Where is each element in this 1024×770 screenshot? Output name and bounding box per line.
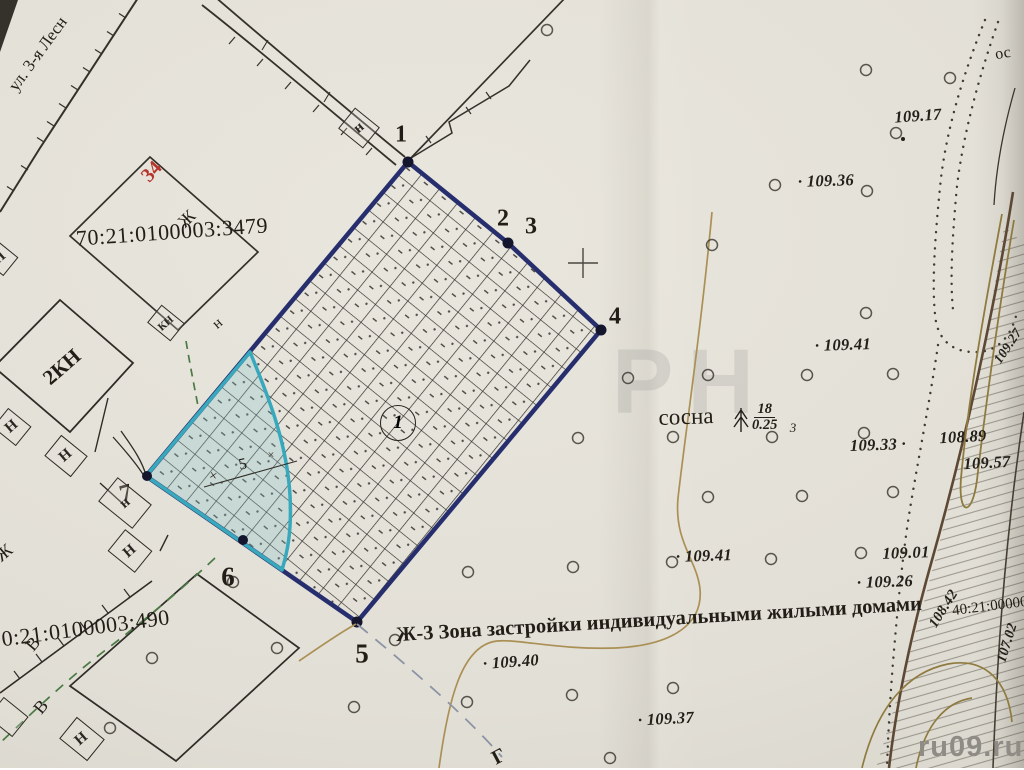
vertex-label-3: 3 bbox=[525, 214, 537, 241]
vertex-label-2: 2 bbox=[497, 206, 509, 233]
pine-diameter: 0.25 bbox=[752, 418, 777, 433]
elevation-label: 109.17 bbox=[894, 104, 942, 127]
elevation-label: 109.33 · bbox=[850, 434, 907, 456]
cross-mark bbox=[568, 248, 598, 278]
vertex-label-4: 4 bbox=[609, 304, 621, 331]
elevation-label: 109.57 bbox=[963, 452, 1011, 474]
elevation-label: · 109.40 bbox=[482, 650, 539, 674]
site-watermark: ru09.ru bbox=[918, 731, 1023, 764]
vertex-label-5: 5 bbox=[355, 639, 369, 670]
vertex-label-1: 1 bbox=[395, 122, 407, 149]
letter-n: Н bbox=[0, 248, 10, 268]
pine-height: 18 bbox=[754, 402, 775, 418]
elevation-label: · 109.26 bbox=[857, 571, 914, 593]
pine-ratio: 18 0.25 bbox=[752, 402, 777, 433]
letter-n: н bbox=[350, 119, 368, 138]
elevation-dot bbox=[901, 137, 905, 141]
vertex-label-6: 6 bbox=[221, 562, 235, 593]
pine-label: сосна bbox=[658, 403, 714, 431]
elevation-label: · 109.36 bbox=[798, 170, 855, 192]
circled-parcel-number-text: 1 bbox=[393, 412, 403, 434]
elevation-label: · 109.41 bbox=[676, 545, 733, 567]
elevation-label: 108.89 bbox=[939, 426, 987, 448]
letter-n: Н bbox=[120, 541, 140, 561]
corner-text-fragment: ос bbox=[994, 44, 1012, 64]
pine-tree-icon bbox=[734, 408, 748, 432]
letter-n: Н bbox=[56, 446, 76, 466]
cross-mark-b: × bbox=[268, 448, 275, 463]
boundary-lines-top bbox=[408, 0, 566, 161]
letter-n: Н bbox=[2, 417, 22, 437]
letter-n: н bbox=[116, 494, 134, 513]
pine-spacing: 3 bbox=[790, 420, 797, 436]
cadastral-map-photo: РН bbox=[0, 0, 1024, 768]
circled-parcel-number: 1 bbox=[380, 405, 416, 441]
elevation-label: · 109.37 bbox=[637, 708, 694, 731]
street-fence-line bbox=[0, 0, 138, 212]
road-double-line bbox=[202, 0, 405, 165]
letter-n: Н bbox=[72, 729, 92, 749]
elevation-label: 109.01 bbox=[882, 542, 930, 564]
letter-kn: КН bbox=[156, 313, 176, 333]
elevation-label: · 109.41 bbox=[815, 334, 872, 356]
